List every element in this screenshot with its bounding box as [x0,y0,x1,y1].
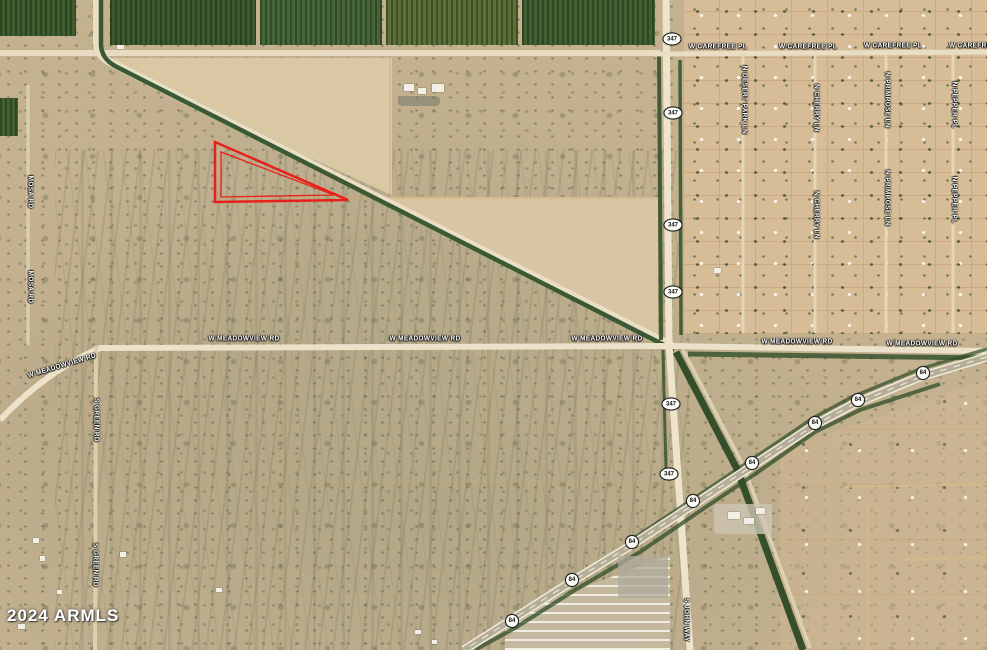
attribution-watermark: 2024 ARMLS [7,606,119,626]
satellite-map[interactable]: W CAREFREE PLW CAREFREE PLW CAREFREE PLW… [0,0,987,650]
parcel-outline-inner [221,152,334,197]
parcel-outline [0,0,987,650]
